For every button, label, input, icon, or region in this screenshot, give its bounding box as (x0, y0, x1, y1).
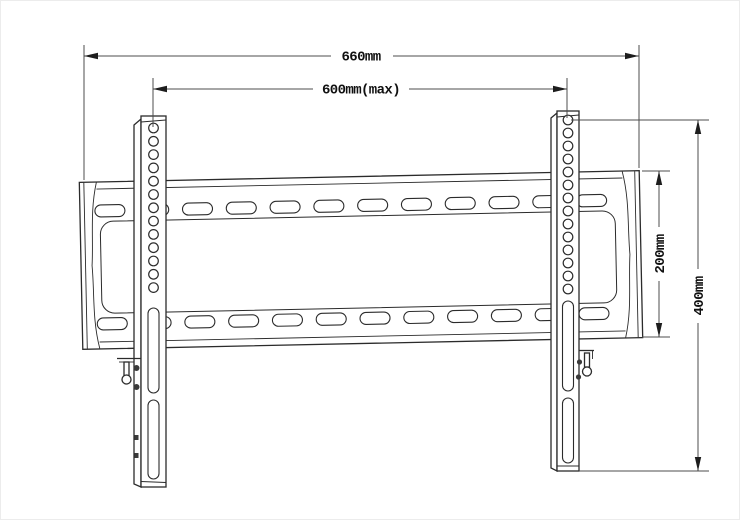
vesa-hole (149, 203, 159, 213)
dim-plate-height-label: 200mm (653, 234, 669, 273)
vesa-hole (149, 150, 159, 160)
right-rail-side-flange (551, 113, 557, 471)
left-rail-slot-lower (148, 400, 159, 479)
dim-overall-width-label: 660mm (341, 50, 380, 66)
wall-mount-slot (229, 315, 259, 328)
vesa-hole (563, 258, 573, 268)
right-rail-slot-lower (563, 398, 574, 463)
wall-mount-slot (445, 197, 475, 210)
dimension-overall-width: 660mm (84, 50, 639, 66)
wall-mount-slot (272, 314, 302, 327)
screw-shaft (124, 362, 129, 376)
vesa-hole (149, 163, 159, 173)
vesa-hole (563, 180, 573, 190)
screw-knob (577, 359, 582, 364)
wall-mount-slot (185, 316, 215, 329)
wall-mount-slot (182, 203, 212, 216)
vesa-hole (563, 271, 573, 281)
wall-mount-slot (358, 199, 388, 212)
left-rail-slot-upper (148, 308, 159, 393)
vesa-hole (563, 167, 573, 177)
arrowhead-top (695, 120, 701, 134)
vesa-hole (149, 270, 159, 280)
wall-mount-slot (316, 313, 346, 326)
vesa-hole (563, 141, 573, 151)
vesa-hole (563, 284, 573, 294)
wall-mount-slot (491, 309, 521, 322)
screw-head (122, 375, 131, 384)
arrowhead-right (625, 53, 639, 59)
rail-notch (135, 453, 139, 458)
wall-mount-slot (314, 200, 344, 213)
dim-rail-height-label: 400mm (692, 276, 708, 315)
left-rail-side-flange (134, 119, 141, 487)
vesa-hole (149, 216, 159, 226)
arrowhead-left (153, 86, 167, 92)
screw-knob (134, 384, 140, 390)
vesa-hole (149, 256, 159, 266)
wall-mount-slot (401, 198, 431, 211)
arrowhead-bottom (695, 457, 701, 471)
wall-mount-slot (404, 311, 434, 324)
dimension-hole-span: 600mm(max) (153, 83, 567, 99)
screw-head (583, 367, 592, 376)
vesa-hole (563, 206, 573, 216)
dimension-plate-height: 200mm (653, 171, 669, 337)
vesa-hole (563, 193, 573, 203)
vesa-hole (563, 245, 573, 255)
wall-mount-slot (576, 194, 606, 207)
vesa-hole (149, 137, 159, 147)
vesa-hole (563, 154, 573, 164)
wall-mount-slot (360, 312, 390, 325)
arrowhead-top (656, 171, 662, 185)
screw-shaft (585, 353, 590, 367)
wall-mount-slot (97, 317, 127, 330)
arrowhead-left (84, 53, 98, 59)
screw-knob (576, 374, 581, 379)
arrowhead-right (553, 86, 567, 92)
vesa-hole (563, 232, 573, 242)
wall-mount-slot (489, 196, 519, 209)
wall-mount-slot (95, 204, 125, 217)
dim-hole-span-label: 600mm(max) (322, 83, 400, 99)
vesa-hole (149, 230, 159, 240)
rail-notch (135, 435, 139, 440)
vesa-hole (149, 283, 159, 293)
technical-drawing-canvas: 660mm 600mm(max) 200mm 400mm (1, 1, 740, 520)
wall-mount-slot (447, 310, 477, 323)
screw-knob (134, 365, 140, 371)
vesa-hole (149, 190, 159, 200)
vesa-hole (563, 128, 573, 138)
wall-mount-slot (226, 202, 256, 215)
vesa-hole (563, 219, 573, 229)
arrowhead-bottom (656, 323, 662, 337)
right-rail-slot-upper (563, 301, 574, 391)
drawing-page: 660mm 600mm(max) 200mm 400mm (0, 0, 740, 520)
wall-mount-slot (579, 307, 609, 320)
wall-mount-slot (270, 201, 300, 214)
vesa-hole (149, 176, 159, 186)
dimension-rail-height: 400mm (692, 120, 708, 471)
vesa-hole (149, 243, 159, 253)
